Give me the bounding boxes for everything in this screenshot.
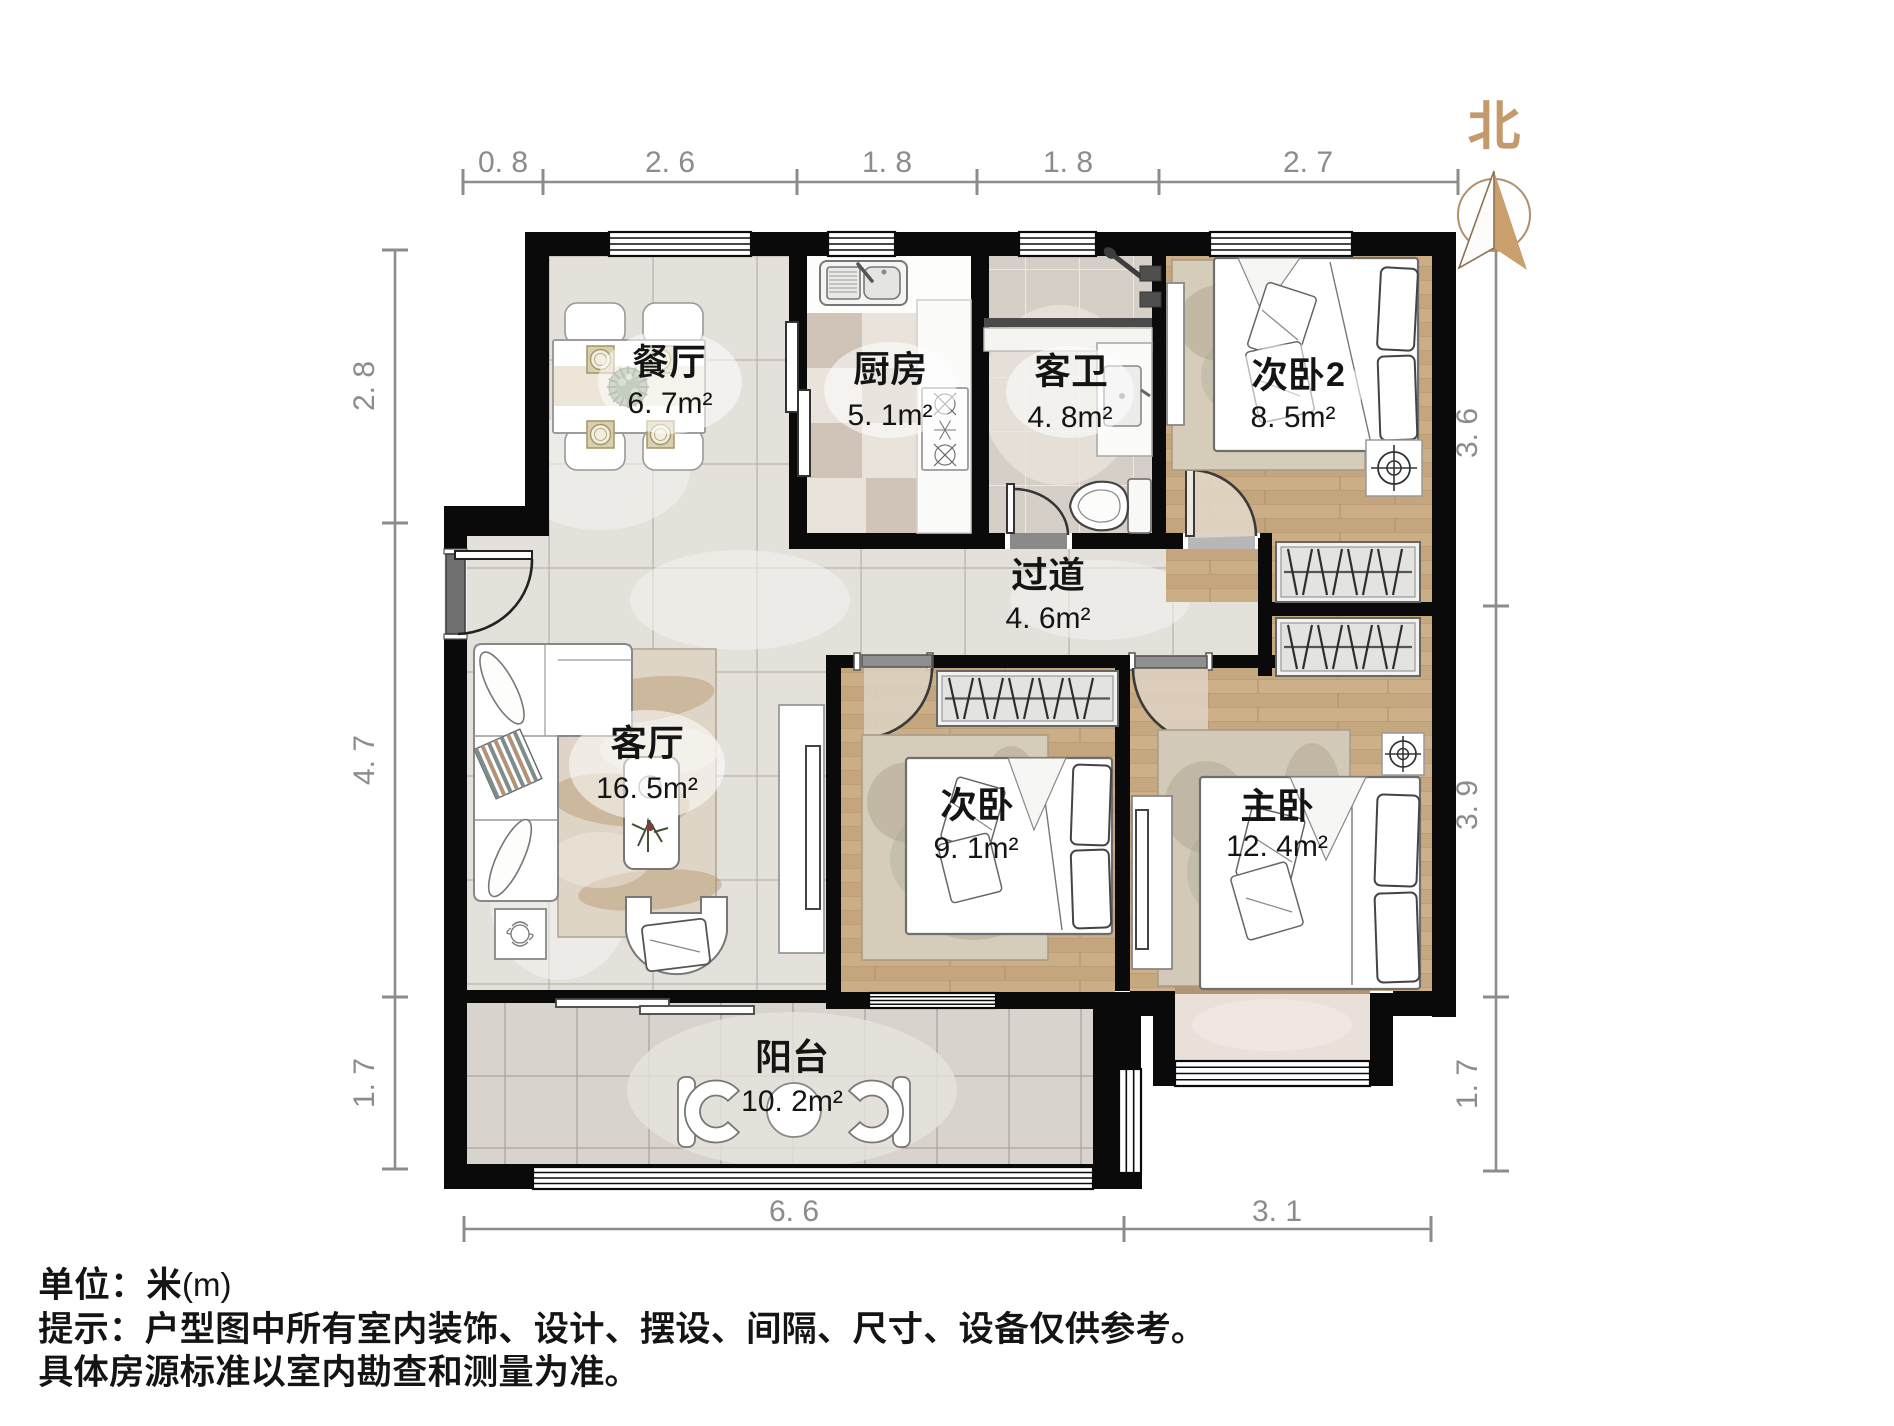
svg-text:4. 6m²: 4. 6m² (1005, 602, 1090, 635)
svg-text:4. 8m²: 4. 8m² (1027, 401, 1112, 434)
svg-text:3. 6: 3. 6 (1451, 408, 1484, 458)
svg-text:4. 7: 4. 7 (348, 735, 381, 785)
svg-text:6. 6: 6. 6 (769, 1195, 819, 1228)
svg-text:16. 5m²: 16. 5m² (596, 772, 698, 805)
svg-text:2. 8: 2. 8 (348, 361, 381, 411)
svg-text:2. 7: 2. 7 (1283, 146, 1333, 179)
svg-text:5. 1m²: 5. 1m² (847, 399, 932, 432)
svg-text:2. 6: 2. 6 (645, 146, 695, 179)
svg-text:1. 8: 1. 8 (862, 146, 912, 179)
svg-text:1. 7: 1. 7 (1451, 1059, 1484, 1109)
svg-text:9. 1m²: 9. 1m² (933, 832, 1018, 865)
svg-text:12. 4m²: 12. 4m² (1226, 830, 1328, 863)
svg-text:(m): (m) (182, 1266, 231, 1303)
svg-text:3. 1: 3. 1 (1252, 1195, 1302, 1228)
svg-text:1. 8: 1. 8 (1043, 146, 1093, 179)
svg-text:2: 2 (1326, 356, 1345, 394)
svg-text:8. 5m²: 8. 5m² (1250, 401, 1335, 434)
svg-text:0. 8: 0. 8 (478, 146, 528, 179)
svg-text:10. 2m²: 10. 2m² (741, 1085, 843, 1118)
svg-text:3. 9: 3. 9 (1451, 780, 1484, 830)
svg-text:6. 7m²: 6. 7m² (627, 387, 712, 420)
svg-text:1. 7: 1. 7 (348, 1058, 381, 1108)
